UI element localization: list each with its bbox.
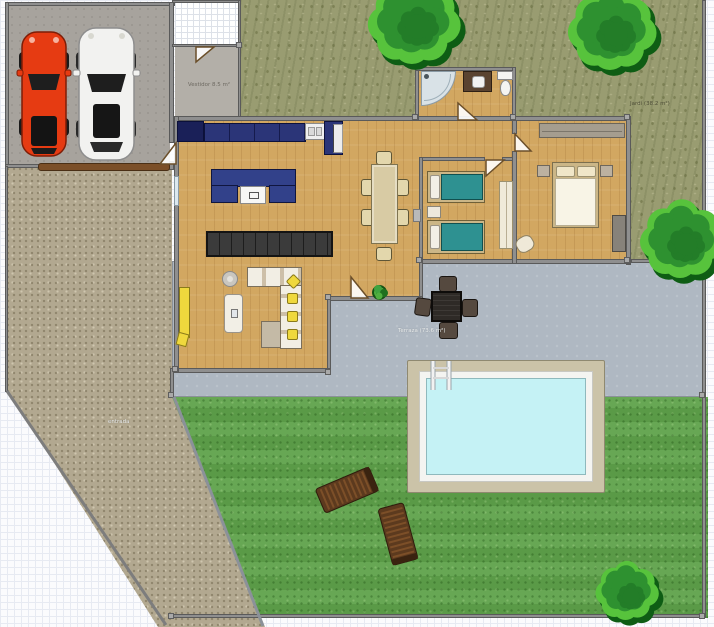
- door-bathroom[interactable]: [458, 103, 477, 120]
- tree-3[interactable]: [640, 199, 714, 284]
- sun-lounger-1[interactable]: [315, 467, 379, 514]
- pool-ladder[interactable]: [433, 361, 449, 390]
- door-garage-kitchen[interactable]: [160, 143, 176, 164]
- tree-1[interactable]: [368, 0, 466, 70]
- tree-4[interactable]: [596, 561, 664, 626]
- trees-layer: [368, 0, 714, 626]
- plan-overlay: [0, 0, 714, 627]
- sun-lounger-2[interactable]: [378, 503, 418, 566]
- door-bedroom1[interactable]: [486, 160, 504, 176]
- white-car[interactable]: [73, 28, 140, 160]
- door-living-patio[interactable]: [351, 277, 368, 298]
- tree-2[interactable]: [568, 0, 662, 76]
- lawn-edge-diagonal: [174, 397, 263, 626]
- red-car[interactable]: [17, 32, 71, 156]
- floor-plan-canvas: Vestidor 8.5 m² Terraza (73.6 m²) Jardí …: [0, 0, 714, 627]
- loungers-layer: [315, 467, 418, 566]
- door-vestibule[interactable]: [196, 47, 214, 62]
- potted-plant: [374, 285, 388, 300]
- boundary-diagonal-left: [7, 391, 166, 625]
- door-bedroom2[interactable]: [515, 134, 531, 151]
